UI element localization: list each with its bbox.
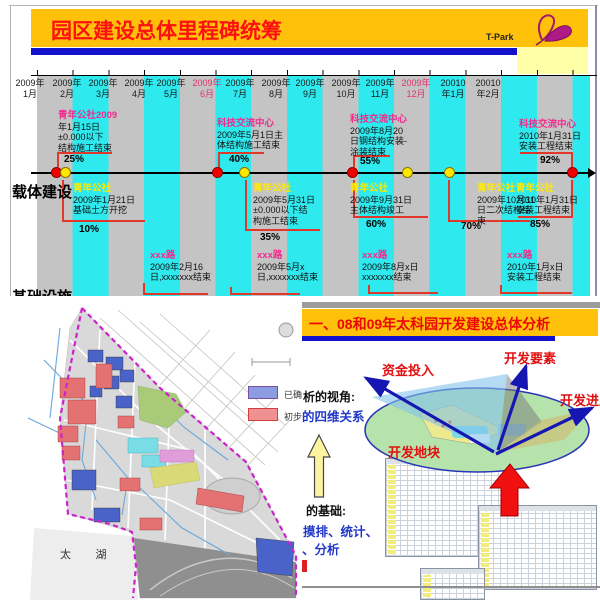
milestone-percent: 25% [64,154,84,165]
spreadsheet-thumbnail [420,568,485,600]
road-milestone-callout: xxx路 2010年1月x日 安装工程结束 [507,251,564,283]
timeline-month: 20010年2月 [466,78,510,99]
milestone-callout: 科技交流中心 2009年5月1日主 体结构施工结束 [217,119,283,151]
milestone-callout: 青年公社2009 年1月15日 ±0.000以下 结构施工结束 [58,111,117,153]
milestone-callout: 青年公社 2009年1月21日 基础土方开挖 [73,184,135,216]
milestone-dot-yellow [239,167,250,178]
milestone-callout: 青年公社 2009年9月31日 主体结构竣工 [350,184,412,216]
slide-header: 一、08和09年太科园开发建设总体分析 [302,309,598,336]
slide-title: 园区建设总体里程碑统筹 [51,15,282,45]
milestone-callout: 青年公社 2010年1月31日 安装工程结束 [516,184,578,216]
milestone-callout: 科技交流中心 2009年8月20 日钢结构安装- 涂装结束 [350,115,407,157]
analysis-text: 、分析 [302,539,340,558]
milestone-callout: 科技交流中心 2010年1月31日 安装工程结束 [519,120,581,152]
legend-label-preliminary: 初步确定 [284,410,302,423]
spreadsheet-thumbnail [478,505,597,590]
statistics-text: 摸排、统计、 [303,521,378,540]
slide-top-bar [302,302,600,308]
road-milestone-callout: xxx路 2009年8月x日 xxxxxxx结束 [362,251,419,283]
road-milestone-callout: xxx路 2009年2月16 日,xxxxxxx结束 [150,251,211,283]
label-development-elements: 开发要素 [504,348,556,367]
screenshot-root: 园区建设总体里程碑统筹 T-Park 2009年1月 2009年2月 2009年… [0,0,600,600]
slide-bottom-line [302,586,600,588]
label-development-progress: 开发进度 [560,390,600,409]
lake-label: 太 湖 [60,546,106,562]
label-capital-investment: 资金投入 [382,360,434,379]
road-milestone-callout: xxx路 2009年5月x 日,xxxxxxx结束 [257,251,318,283]
site-plan-map [0,300,302,600]
milestone-percent: 92% [540,155,560,166]
milestone-percent: 10% [79,224,99,235]
analysis-base-text: 的基础: [306,502,346,519]
row-label-infrastructure: 基础设施 [12,286,72,296]
milestone-slide: 园区建设总体里程碑统筹 T-Park 2009年1月 2009年2月 2009年… [0,0,600,296]
slide-border-left [10,5,11,296]
tpark-logo: T-Park [484,10,584,46]
callout-connector [500,285,572,294]
header-underline-bar [31,48,517,55]
milestone-dot-red [567,167,578,178]
slide-border-top [9,5,598,6]
slide-border-right [595,5,597,296]
milestone-percent: 85% [530,219,550,230]
callout-connector [143,283,208,295]
slide-title: 一、08和09年太科园开发建设总体分析 [309,314,550,334]
header-underline-bar [302,336,555,341]
row-label-carrier: 载体建设 [12,181,72,202]
milestone-percent: 40% [229,154,249,165]
site-plan-panel: 已确定 初步确定 太 湖 [0,300,302,600]
milestone-dot-yellow [402,167,413,178]
milestone-callout: 青年公社 2009年5月31日 ±0.000以下结 构施工结束 [253,184,315,226]
legend-swatch-preliminary [248,408,278,421]
legend-label-confirmed: 已确定 [284,388,302,401]
slide-header: 园区建设总体里程碑统筹 T-Park [31,9,588,47]
milestone-dot-red [212,167,223,178]
milestone-percent: 60% [366,219,386,230]
callout-connector [230,287,300,295]
logo-text: T-Park [486,32,514,42]
clipped-red-shape [302,560,307,572]
legend-swatch-confirmed [248,386,278,399]
timeline-axis [31,172,588,174]
timeline-ticks [37,70,593,76]
label-development-plots: 开发地块 [388,442,440,461]
analysis-slide: 一、08和09年太科园开发建设总体分析 [302,302,600,600]
axis-arrow-icon [588,168,596,178]
milestone-dot-yellow [444,167,455,178]
four-dimension-text: 的四维关系 [302,406,365,425]
callout-connector [368,285,438,294]
milestone-percent: 55% [360,156,380,167]
milestone-dot-yellow [60,167,71,178]
milestone-percent: 35% [260,232,280,243]
analysis-view-text: 析的视角: [303,388,355,405]
milestone-dot-red [347,167,358,178]
milestone-percent: 70% [461,221,481,232]
